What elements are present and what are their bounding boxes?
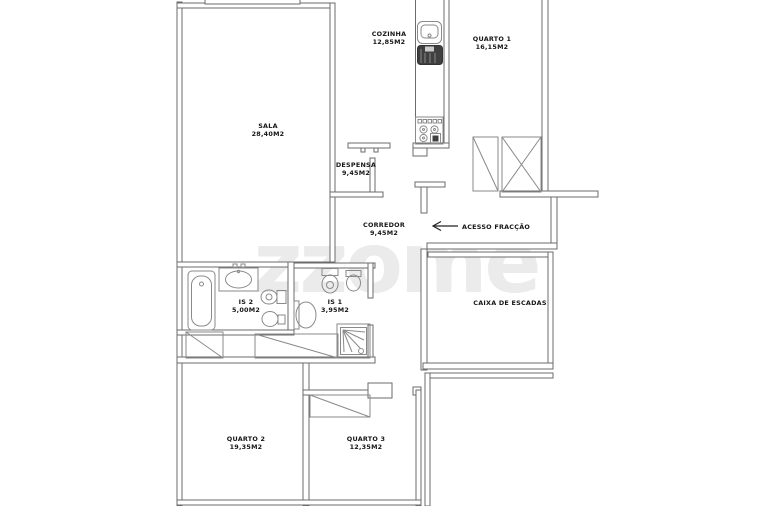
room-area: 28,40M2 — [252, 130, 285, 138]
kitchen-appliance-icon — [418, 46, 443, 65]
bathtub-icon — [188, 271, 215, 330]
is2-bidet-icon — [262, 312, 285, 327]
room-label-quarto-2: QUARTO 2 19,35M2 — [227, 435, 265, 451]
room-name: QUARTO 2 — [227, 435, 265, 443]
room-label-cozinha: COZINHA 12,85M2 — [372, 30, 407, 46]
room-name: QUARTO 3 — [347, 435, 385, 443]
room-area: 5,00M2 — [232, 306, 260, 314]
room-name: CORREDOR — [363, 221, 405, 229]
room-label-sala: SALA 28,40M2 — [252, 122, 285, 138]
room-name: CAIXA DE ESCADAS — [473, 299, 547, 307]
room-area: 19,35M2 — [230, 443, 263, 451]
room-name: IS 1 — [328, 298, 343, 306]
is2-sink-icon — [219, 264, 258, 291]
room-name: DESPENSA — [336, 161, 376, 169]
room-area: 3,95M2 — [321, 306, 349, 314]
room-area: 12,35M2 — [350, 443, 383, 451]
floor-plan-image: zzome — [0, 0, 762, 506]
entry-label: ACESSO FRACÇÃO — [462, 222, 530, 231]
wardrobe-quarto1-left — [473, 137, 498, 191]
wardrobe-hall-left — [186, 332, 223, 358]
room-label-caixa-de-escadas: CAIXA DE ESCADAS — [473, 299, 547, 307]
shower-icon — [337, 324, 370, 358]
room-name: QUARTO 1 — [473, 35, 511, 43]
room-label-quarto-1: QUARTO 1 16,15M2 — [473, 35, 511, 51]
room-label-quarto-3: QUARTO 3 12,35M2 — [347, 435, 385, 451]
stove-icon — [416, 117, 444, 144]
wardrobe-quarto1-right — [502, 137, 541, 192]
entry-label-text: ACESSO FRACÇÃO — [462, 222, 530, 231]
kitchen-sink-icon — [418, 22, 442, 44]
room-area: 9,45M2 — [370, 229, 398, 237]
wardrobe-hall-long — [255, 334, 338, 358]
room-name: COZINHA — [372, 30, 407, 38]
room-area: 16,15M2 — [476, 43, 509, 51]
floor-plan-svg: zzome — [0, 0, 762, 506]
room-name: SALA — [258, 122, 278, 130]
room-name: IS 2 — [239, 298, 254, 306]
wardrobe-quarto3 — [310, 395, 370, 417]
room-area: 9,45M2 — [342, 169, 370, 177]
room-area: 12,85M2 — [373, 38, 406, 46]
